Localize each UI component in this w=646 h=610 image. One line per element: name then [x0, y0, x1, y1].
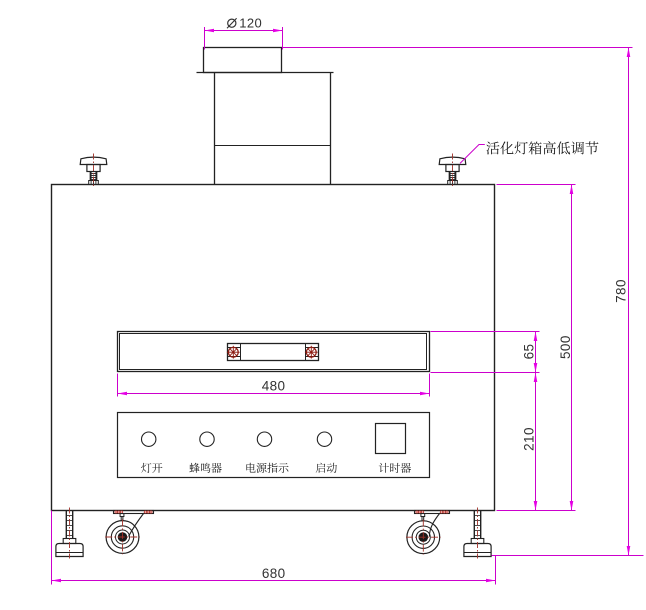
svg-text:210: 210 [521, 427, 536, 451]
svg-text:65: 65 [521, 344, 536, 360]
svg-text:780: 780 [614, 279, 629, 303]
svg-text:680: 680 [262, 566, 286, 581]
svg-text:500: 500 [558, 335, 573, 359]
svg-text:480: 480 [262, 379, 286, 394]
svg-text:120: 120 [239, 16, 262, 31]
